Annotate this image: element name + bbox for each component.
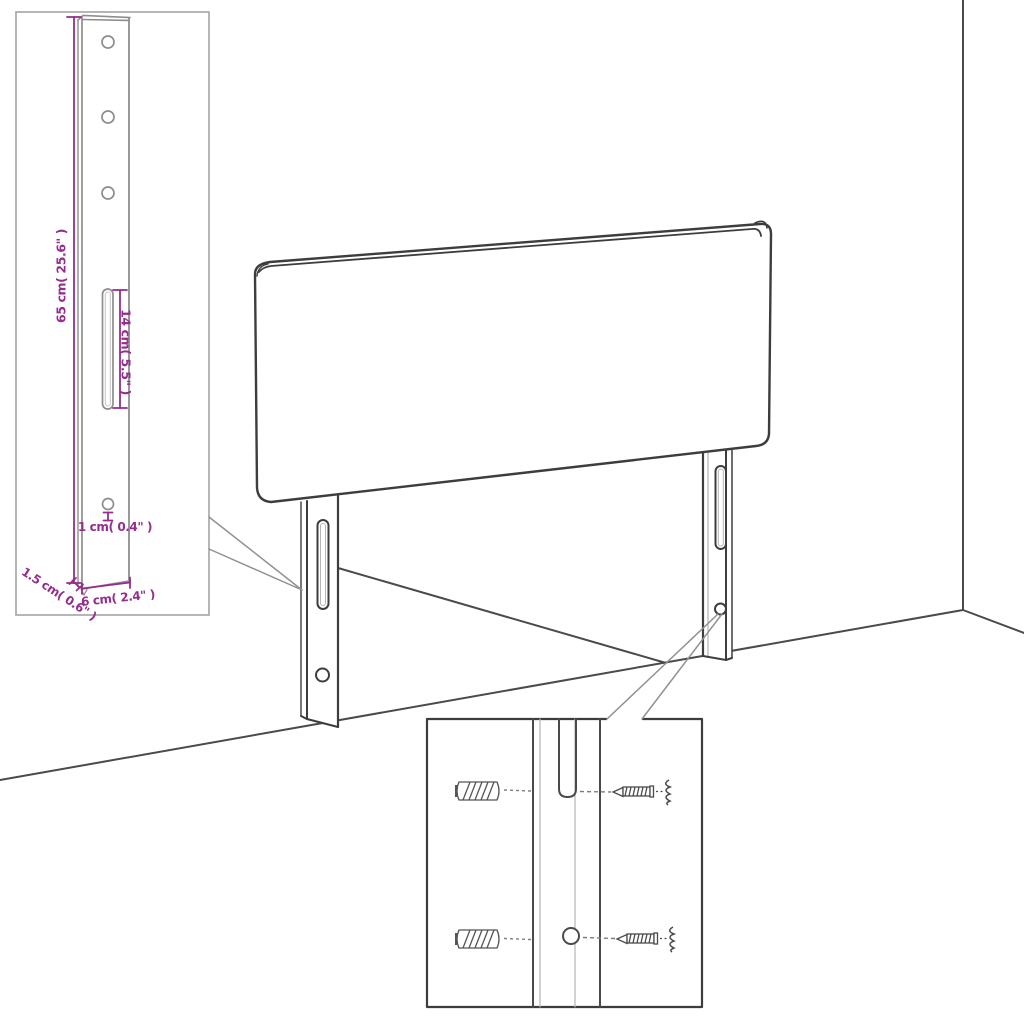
right-leg-slot [716, 466, 727, 549]
inset-bracket-hole-2 [102, 111, 114, 123]
left-leg [301, 496, 338, 727]
dim-slot-length-label: 14 cm( 5.5" ) [119, 309, 134, 395]
inset-bracket-hole-1 [102, 36, 114, 48]
diagonal-accent-line [338, 568, 666, 663]
right-leg [703, 446, 732, 660]
callout-lines [209, 517, 722, 719]
hardware-inset [427, 719, 702, 1007]
hardware-callout-left [607, 614, 718, 719]
dim-hole-diameter-label: 1 cm( 0.4" ) [78, 520, 152, 534]
right-leg-hole [715, 604, 726, 615]
hardware-hole [563, 928, 579, 944]
hardware-callout-right [642, 614, 722, 719]
left-leg-slot [318, 520, 329, 609]
inset-callout-lower [209, 549, 302, 590]
diagram-line-art [0, 0, 1024, 1024]
inset-callout-upper [209, 517, 302, 590]
inset-bracket-slot [103, 289, 114, 409]
inset-bracket-hole-3 [102, 187, 114, 199]
dim-height-label: 65 cm( 25.6" ) [54, 229, 69, 323]
left-leg-hole [316, 669, 329, 682]
inset-bracket-pilot-hole [103, 499, 114, 510]
headboard-panel [255, 221, 771, 502]
floor-line-right [963, 610, 1024, 633]
product-diagram: 65 cm( 25.6" ) 14 cm( 5.5" ) 1 cm( 0.4" … [0, 0, 1024, 1024]
headboard-outline [255, 224, 771, 502]
